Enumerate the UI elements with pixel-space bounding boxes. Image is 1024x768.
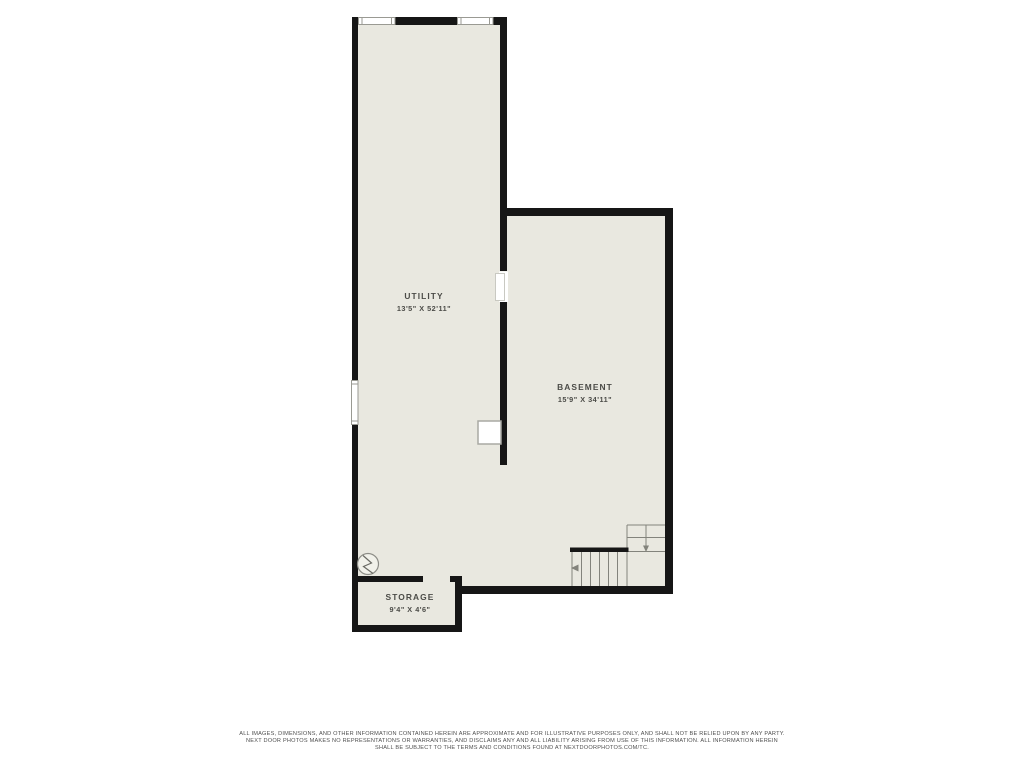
disclaimer-line: NEXT DOOR PHOTOS MAKES NO REPRESENTATION…: [0, 738, 1024, 745]
disclaimer: ALL IMAGES, DIMENSIONS, AND OTHER INFORM…: [0, 731, 1024, 752]
water-heater-icon: [358, 554, 379, 575]
window-top-left-icon: [359, 18, 396, 25]
room-label-basement: BASEMENT: [557, 382, 613, 392]
room-label-storage: STORAGE: [386, 592, 435, 602]
floor-area: [355, 20, 669, 628]
wall-storage-bottom: [352, 625, 462, 632]
room-label-utility: UTILITY: [404, 291, 443, 301]
wall-left: [352, 17, 358, 632]
disclaimer-line: ALL IMAGES, DIMENSIONS, AND OTHER INFORM…: [0, 731, 1024, 738]
room-dim-storage: 9'4" X 4'6": [389, 605, 430, 614]
electrical-panel-icon: [478, 421, 501, 444]
wall-basement-right: [665, 208, 673, 594]
room-dim-basement: 15'9" X 34'11": [558, 395, 612, 404]
floor-plan-page: UTILITY 13'5" X 52'11" BASEMENT 15'9" X …: [0, 0, 1024, 768]
door-opening-basement-icon: [496, 272, 509, 303]
window-left-icon: [352, 381, 359, 425]
wall-basement-bottom: [455, 586, 673, 594]
wall-basement-top: [500, 208, 673, 216]
wall-storage-right: [455, 576, 462, 632]
disclaimer-line: SHALL BE SUBJECT TO THE TERMS AND CONDIT…: [0, 745, 1024, 752]
wall-divider-upper: [500, 17, 507, 271]
floor-plan: UTILITY 13'5" X 52'11" BASEMENT 15'9" X …: [0, 0, 1024, 768]
window-top-right-icon: [458, 18, 494, 25]
room-dim-utility: 13'5" X 52'11": [397, 304, 451, 313]
wall-storage-top-left: [352, 576, 423, 582]
